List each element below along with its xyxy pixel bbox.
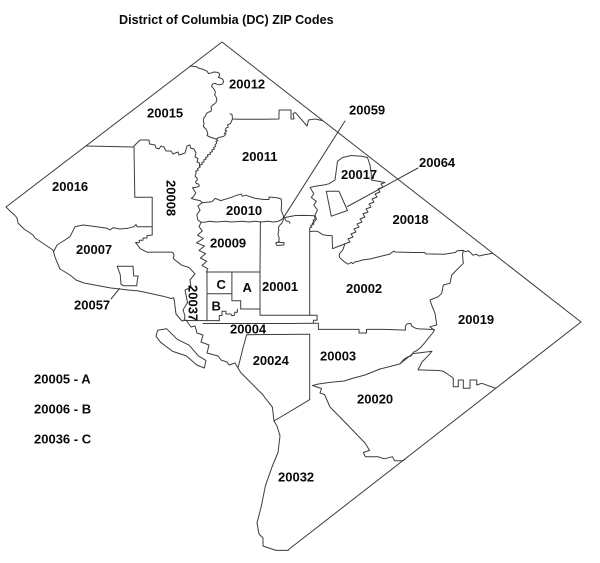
svg-text:20016: 20016	[52, 179, 88, 194]
svg-text:20008: 20008	[164, 180, 179, 216]
svg-text:20032: 20032	[278, 470, 314, 485]
svg-text:20036 - C: 20036 - C	[34, 431, 92, 446]
svg-text:20059: 20059	[349, 103, 385, 118]
svg-text:20064: 20064	[419, 155, 456, 170]
svg-text:20010: 20010	[226, 203, 262, 218]
svg-text:20009: 20009	[210, 236, 246, 251]
svg-text:C: C	[217, 277, 227, 292]
svg-text:20006 - B: 20006 - B	[34, 401, 91, 416]
svg-text:20020: 20020	[357, 392, 393, 407]
svg-text:20004: 20004	[230, 322, 267, 337]
svg-text:20011: 20011	[242, 149, 277, 164]
svg-text:20002: 20002	[346, 281, 382, 296]
svg-text:20007: 20007	[76, 242, 112, 257]
svg-text:20015: 20015	[147, 106, 183, 121]
svg-text:A: A	[243, 280, 253, 295]
svg-text:20012: 20012	[229, 77, 265, 92]
svg-text:20001: 20001	[262, 279, 298, 294]
svg-text:20037: 20037	[186, 285, 201, 321]
svg-text:20005 - A: 20005 - A	[34, 372, 91, 387]
svg-text:B: B	[212, 299, 221, 314]
svg-text:20057: 20057	[74, 298, 110, 313]
svg-text:20003: 20003	[320, 349, 356, 364]
svg-text:20019: 20019	[458, 312, 494, 327]
svg-text:District of Columbia (DC) ZIP: District of Columbia (DC) ZIP Codes	[119, 13, 334, 27]
svg-text:20024: 20024	[253, 353, 290, 368]
svg-text:20017: 20017	[341, 167, 377, 182]
svg-text:20018: 20018	[393, 212, 429, 227]
